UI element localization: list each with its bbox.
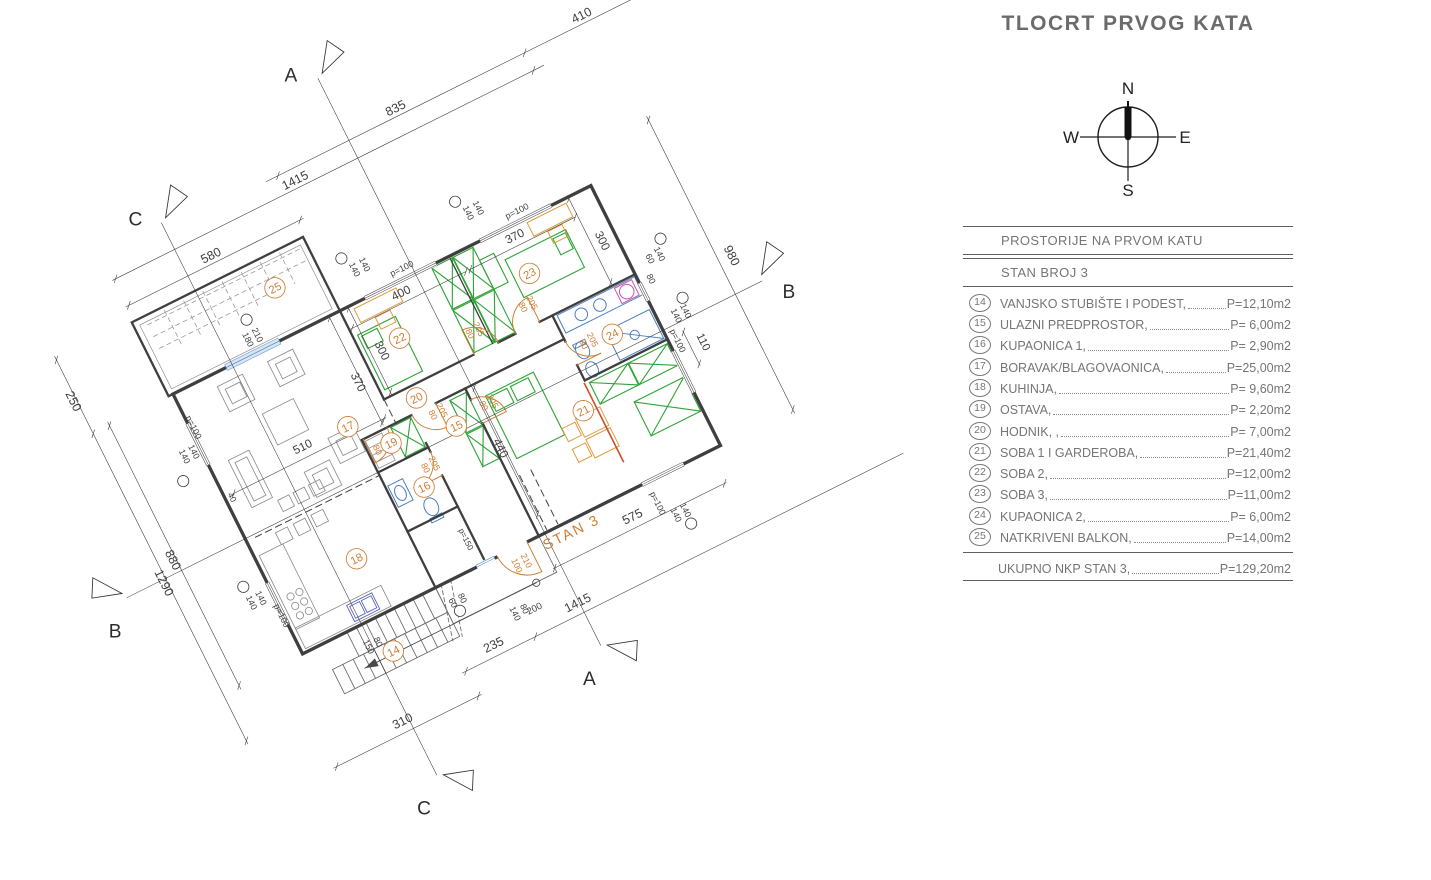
table-row: 17BORAVAK/BLAGOVAONICA,P=25,00m2	[963, 354, 1291, 375]
room-name: HODNIK, ,	[1000, 425, 1060, 440]
dimension-label: 410	[569, 5, 594, 27]
dotted-leader	[1059, 393, 1229, 394]
room-area: P= 7,00m2	[1230, 425, 1291, 440]
room-name: SOBA 3,	[1000, 488, 1049, 503]
compass-east-label: E	[1179, 128, 1190, 147]
dimension-label: 575	[620, 506, 645, 528]
table-row: 22SOBA 2,P=12,00m2	[963, 461, 1291, 482]
reference-mark-icon	[176, 474, 191, 489]
table-row: 14VANJSKO STUBIŠTE I PODEST,P=12,10m2	[963, 291, 1291, 312]
dotted-leader	[1134, 542, 1226, 543]
schedule-rows: 14VANJSKO STUBIŠTE I PODEST,P=12,10m215U…	[963, 287, 1293, 553]
table-row: 19OSTAVA,P= 2,20m2	[963, 397, 1291, 418]
dimension-label: 980	[721, 243, 743, 268]
table-row: 25NATKRIVENI BALKON,P=14,00m2	[963, 525, 1291, 546]
room-number-badge: 25	[969, 528, 991, 546]
section-letter: A	[583, 669, 596, 690]
room-number-badge: 14	[969, 294, 991, 312]
room-name: KUPAONICA 1,	[1000, 339, 1087, 354]
dotted-leader	[1061, 436, 1229, 437]
compass-rose: N E S W	[1053, 70, 1203, 200]
dimension-label: 835	[383, 97, 408, 119]
room-number-badge: 15	[969, 315, 991, 333]
room-name: OSTAVA,	[1000, 403, 1052, 418]
room-number-badge: 22	[969, 464, 991, 482]
dimension-label: 310	[390, 710, 415, 732]
info-panel: TLOCRT PRVOG KATA N E S W PROSTORIJE NA …	[963, 0, 1293, 875]
page-title: TLOCRT PRVOG KATA	[963, 12, 1293, 36]
schedule-header: PROSTORIJE NA PRVOM KATU	[963, 227, 1293, 254]
room-area: P= 6,00m2	[1230, 318, 1291, 333]
floor-plan-page: { "title": "TLOCRT PRVOG KATA", "compass…	[0, 0, 1431, 875]
room-area: P= 6,00m2	[1230, 510, 1291, 525]
dimension-label: 1290	[151, 567, 176, 598]
compass-west-label: W	[1063, 128, 1079, 147]
room-number-badge: 20	[969, 422, 991, 440]
room-number-badge: 23	[969, 485, 991, 503]
room-name: KUHINJA,	[1000, 382, 1058, 397]
room-area: P= 9,60m2	[1230, 382, 1291, 397]
room-area: P=21,40m2	[1227, 446, 1291, 461]
dotted-leader	[1150, 329, 1229, 330]
dimension-label: 80	[644, 272, 657, 285]
dotted-leader	[1188, 308, 1226, 309]
compass-icon	[1080, 101, 1176, 181]
dotted-leader	[1088, 521, 1229, 522]
dotted-leader	[1140, 457, 1225, 458]
table-row: 16KUPAONICA 1,P= 2,90m2	[963, 333, 1291, 354]
dotted-leader	[1166, 372, 1226, 373]
dimension-label: 110	[694, 332, 713, 353]
dotted-leader	[1050, 499, 1227, 500]
section-letter: C	[417, 799, 431, 820]
room-name: KUPAONICA 2,	[1000, 510, 1087, 525]
room-name: SOBA 2,	[1000, 467, 1049, 482]
table-row: 23SOBA 3,P=11,00m2	[963, 482, 1291, 503]
room-schedule: PROSTORIJE NA PRVOM KATU STAN BROJ 3 14V…	[963, 226, 1293, 581]
section-letter: A	[284, 66, 297, 87]
section-letter: B	[782, 282, 795, 303]
table-row: 21SOBA 1 I GARDEROBA,P=21,40m2	[963, 440, 1291, 461]
dimension-label: 580	[198, 245, 223, 267]
room-area: P=12,00m2	[1227, 467, 1291, 482]
room-area: P=11,00m2	[1228, 488, 1291, 503]
room-number-badge: 21	[969, 443, 991, 461]
section-letter: C	[129, 209, 143, 230]
room-number-badge: 16	[969, 336, 991, 354]
table-row: 15ULAZNI PREDPROSTOR,P= 6,00m2	[963, 312, 1291, 333]
room-area: P= 2,90m2	[1230, 339, 1291, 354]
dotted-leader	[1088, 350, 1229, 351]
compass-north-label: N	[1122, 79, 1134, 98]
dimension-label: 250	[62, 389, 84, 414]
dimension-label: p=100	[648, 490, 668, 517]
floor-plan-svg: 8354101415580400370p=100p=10014014014014…	[0, 0, 965, 875]
dotted-leader	[1050, 478, 1226, 479]
table-row: 20HODNIK, ,P= 7,00m2	[963, 418, 1291, 439]
reference-mark-icon	[684, 516, 699, 531]
dotted-leader	[1132, 573, 1219, 574]
schedule-total: UKUPNO NKP STAN 3, P=129,20m2	[963, 553, 1293, 580]
room-area: P=12,10m2	[1227, 297, 1291, 312]
table-row: 24KUPAONICA 2,P= 6,00m2	[963, 503, 1291, 524]
dimension-label: 880	[162, 548, 184, 573]
room-area: P=25,00m2	[1227, 361, 1291, 376]
floor-plan-drawing: 8354101415580400370p=100p=10014014014014…	[0, 0, 965, 875]
reference-mark-icon	[653, 231, 668, 246]
dimension-label: 1415	[562, 590, 593, 615]
table-row: 18KUHINJA,P= 9,60m2	[963, 376, 1291, 397]
room-number-badge: 19	[969, 400, 991, 418]
room-number-badge: 17	[969, 358, 991, 376]
room-area: P= 2,20m2	[1230, 403, 1291, 418]
room-name: ULAZNI PREDPROSTOR,	[1000, 318, 1149, 333]
room-number-badge: 18	[969, 379, 991, 397]
dotted-leader	[1053, 414, 1229, 415]
room-name: SOBA 1 I GARDEROBA,	[1000, 446, 1139, 461]
section-letter: B	[109, 621, 122, 642]
dimension-label: 235	[481, 634, 506, 656]
total-area: P=129,20m2	[1220, 562, 1291, 577]
compass-south-label: S	[1122, 181, 1133, 200]
room-name: BORAVAK/BLAGOVAONICA,	[1000, 361, 1165, 376]
room-area: P=14,00m2	[1227, 531, 1291, 546]
room-name: NATKRIVENI BALKON,	[1000, 531, 1133, 546]
room-name: VANJSKO STUBIŠTE I PODEST,	[1000, 297, 1187, 312]
reference-mark-icon	[334, 251, 349, 266]
reference-mark-icon	[236, 579, 251, 594]
schedule-subheader: STAN BROJ 3	[963, 259, 1293, 286]
reference-mark-icon	[448, 194, 463, 209]
room-number-badge: 24	[969, 507, 991, 525]
total-label: UKUPNO NKP STAN 3,	[998, 562, 1131, 577]
